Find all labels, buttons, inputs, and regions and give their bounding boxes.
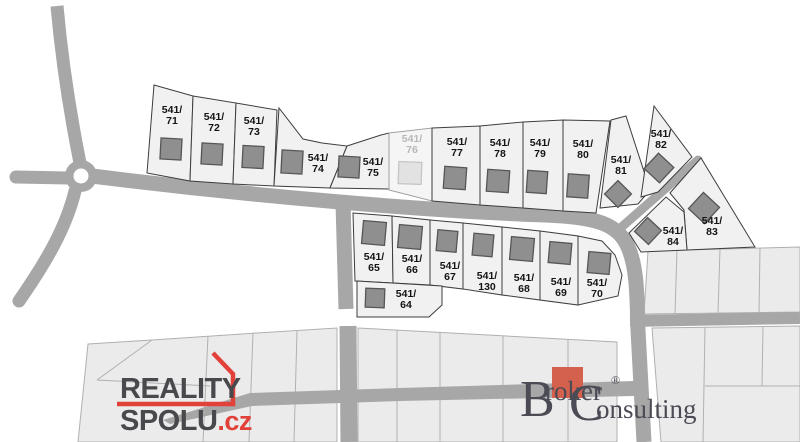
building-footprint: [526, 170, 547, 193]
plot-541-72[interactable]: 541/72: [190, 96, 236, 184]
plot-label: 541/130: [477, 270, 498, 293]
building-footprint: [398, 225, 423, 250]
building-footprint: [548, 242, 572, 265]
plot-area[interactable]: [480, 122, 523, 208]
plot-541-69[interactable]: 541/69: [540, 231, 578, 305]
building-footprint: [443, 166, 466, 189]
building-footprint: [567, 174, 590, 198]
plot-area[interactable]: [147, 85, 193, 181]
plot-541-75[interactable]: 541/75: [330, 133, 389, 189]
plot-541-78[interactable]: 541/78: [480, 122, 523, 208]
building-footprint: [510, 237, 535, 262]
plot-541-70[interactable]: 541/70: [578, 236, 622, 305]
building-footprint: [338, 156, 360, 178]
plot-541-84[interactable]: 541/84: [629, 197, 687, 252]
plot-map: 541/71541/72541/73541/74541/75541/76541/…: [0, 0, 800, 442]
plot-541-65[interactable]: 541/65: [353, 213, 393, 283]
parcel-region: [652, 326, 800, 442]
plot-541-64[interactable]: 541/64: [357, 281, 442, 317]
road: [343, 203, 346, 309]
plot-541-79[interactable]: 541/79: [523, 120, 563, 211]
spolu-wordmark: SPOLU.cz: [120, 405, 252, 437]
building-footprint: [472, 233, 494, 257]
road: [348, 326, 349, 442]
building-footprint: [436, 230, 458, 253]
roundabout-island: [74, 169, 89, 184]
plot-541-66[interactable]: 541/66: [392, 216, 430, 285]
building-footprint: [242, 145, 264, 168]
consulting-word-rest: onsulting: [596, 394, 697, 424]
plot-541-73[interactable]: 541/73: [233, 103, 277, 186]
building-footprint: [160, 138, 182, 160]
building-footprint: [398, 162, 422, 185]
plot-541-130[interactable]: 541/130: [463, 223, 502, 295]
plot-541-77[interactable]: 541/77: [432, 126, 480, 205]
road: [57, 6, 80, 163]
plot-541-76[interactable]: 541/76: [389, 128, 432, 201]
building-footprint: [362, 221, 387, 246]
plot-541-67[interactable]: 541/67: [430, 220, 463, 289]
plot-541-68[interactable]: 541/68: [502, 227, 540, 300]
plot-area[interactable]: [523, 120, 563, 211]
building-footprint: [587, 252, 611, 275]
road: [630, 318, 800, 321]
building-footprint: [201, 143, 223, 165]
road: [16, 177, 68, 178]
plot-map-svg: 541/71541/72541/73541/74541/75541/76541/…: [0, 0, 800, 442]
parcel-region: [644, 247, 800, 314]
reality-wordmark: REALITY: [120, 373, 241, 405]
plot-area[interactable]: [190, 96, 236, 184]
plot-541-71[interactable]: 541/71: [147, 85, 193, 181]
building-footprint: [281, 150, 303, 174]
road: [19, 191, 75, 301]
building-footprint: [486, 169, 509, 192]
cz-tld: .cz: [217, 406, 252, 436]
registered-trademark-icon: ®: [611, 373, 620, 387]
building-footprint: [365, 288, 385, 308]
